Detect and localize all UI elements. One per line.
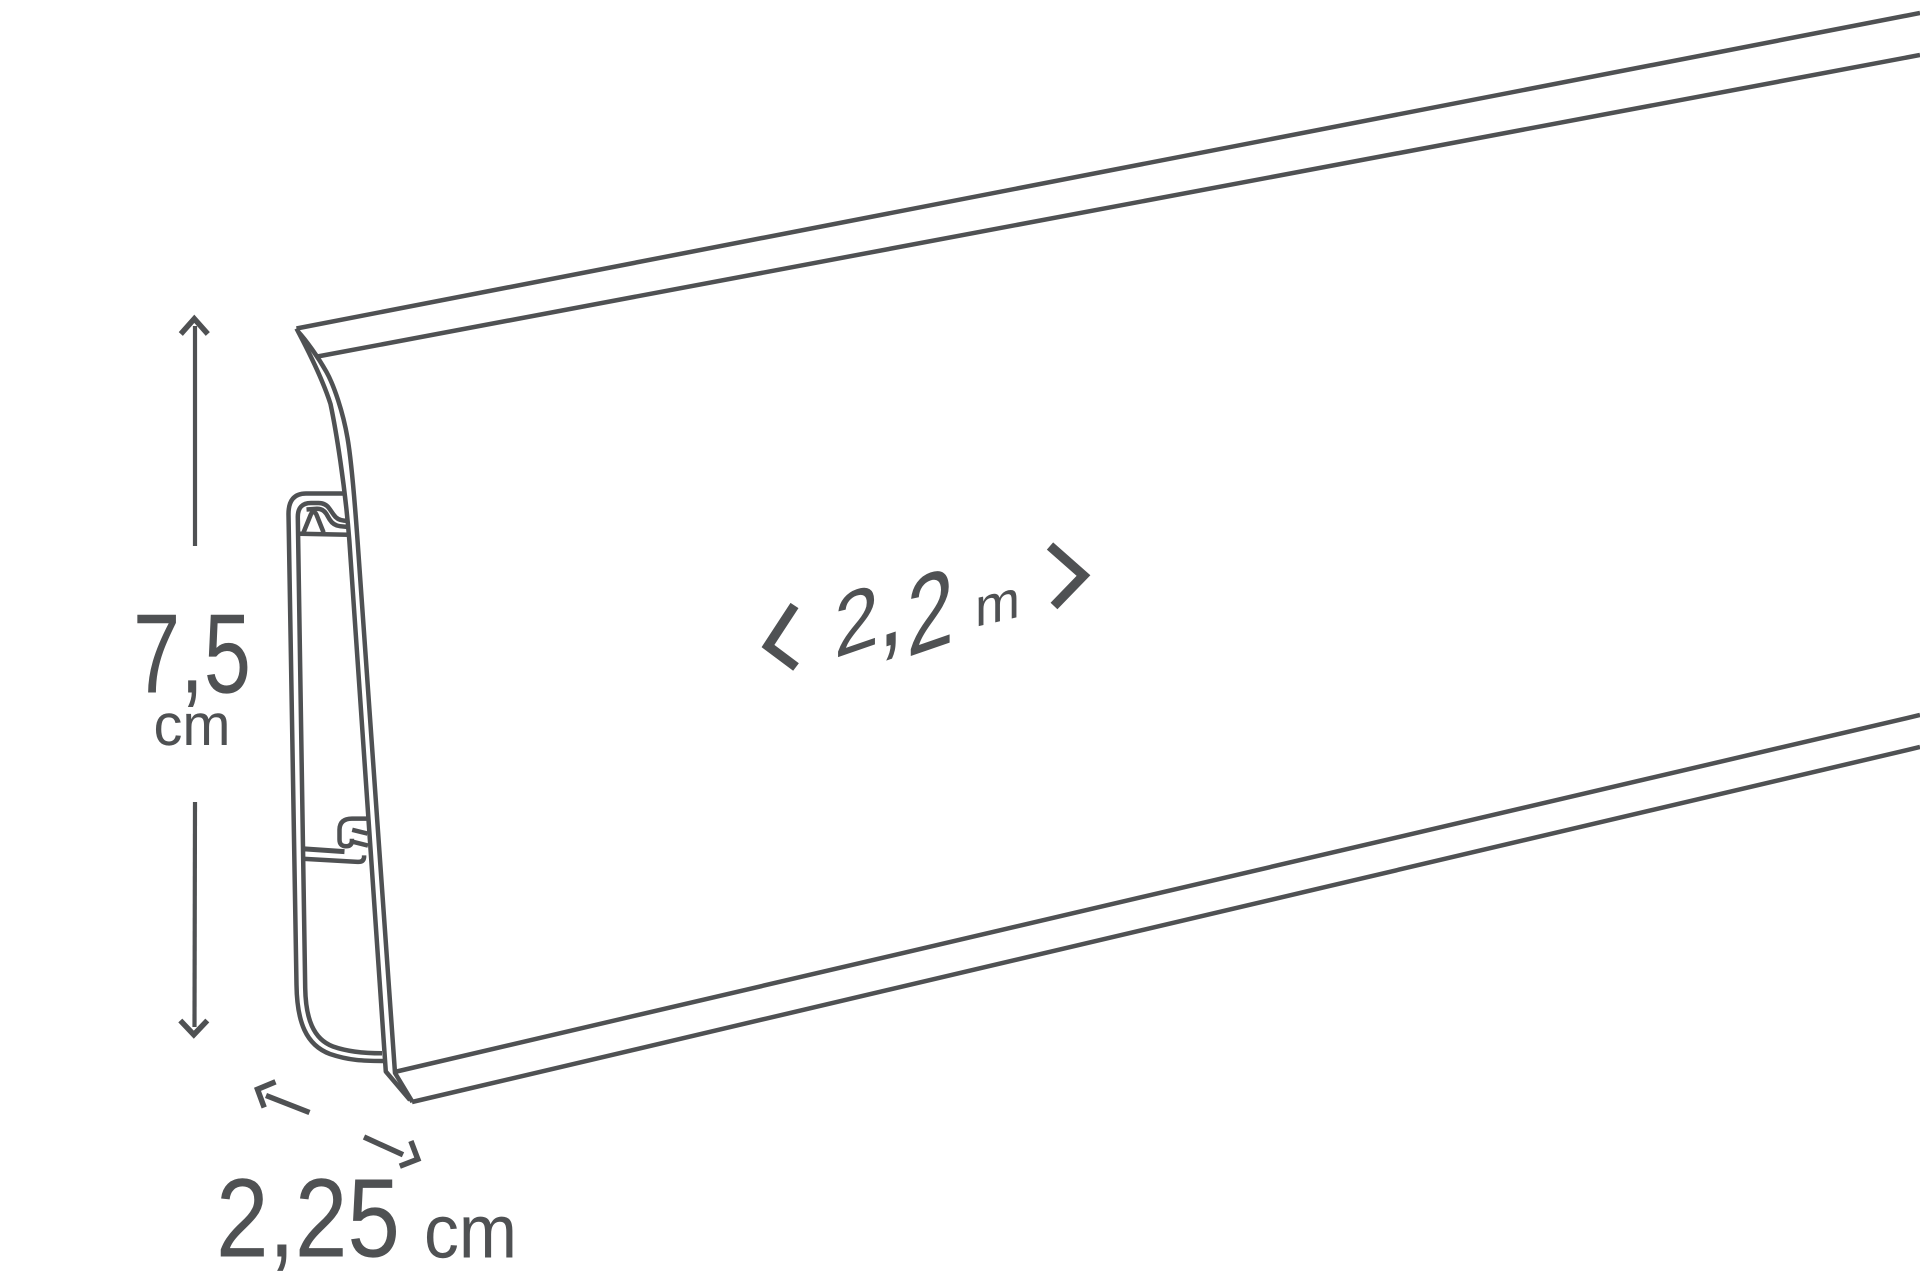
- svg-text:2: 2: [834, 563, 879, 678]
- svg-text:cm: cm: [154, 692, 231, 758]
- svg-text:,: ,: [878, 541, 905, 673]
- svg-text:2,25: 2,25: [216, 1156, 400, 1280]
- svg-text:m: m: [975, 569, 1020, 639]
- svg-text:2: 2: [907, 542, 954, 681]
- svg-text:cm: cm: [424, 1190, 517, 1275]
